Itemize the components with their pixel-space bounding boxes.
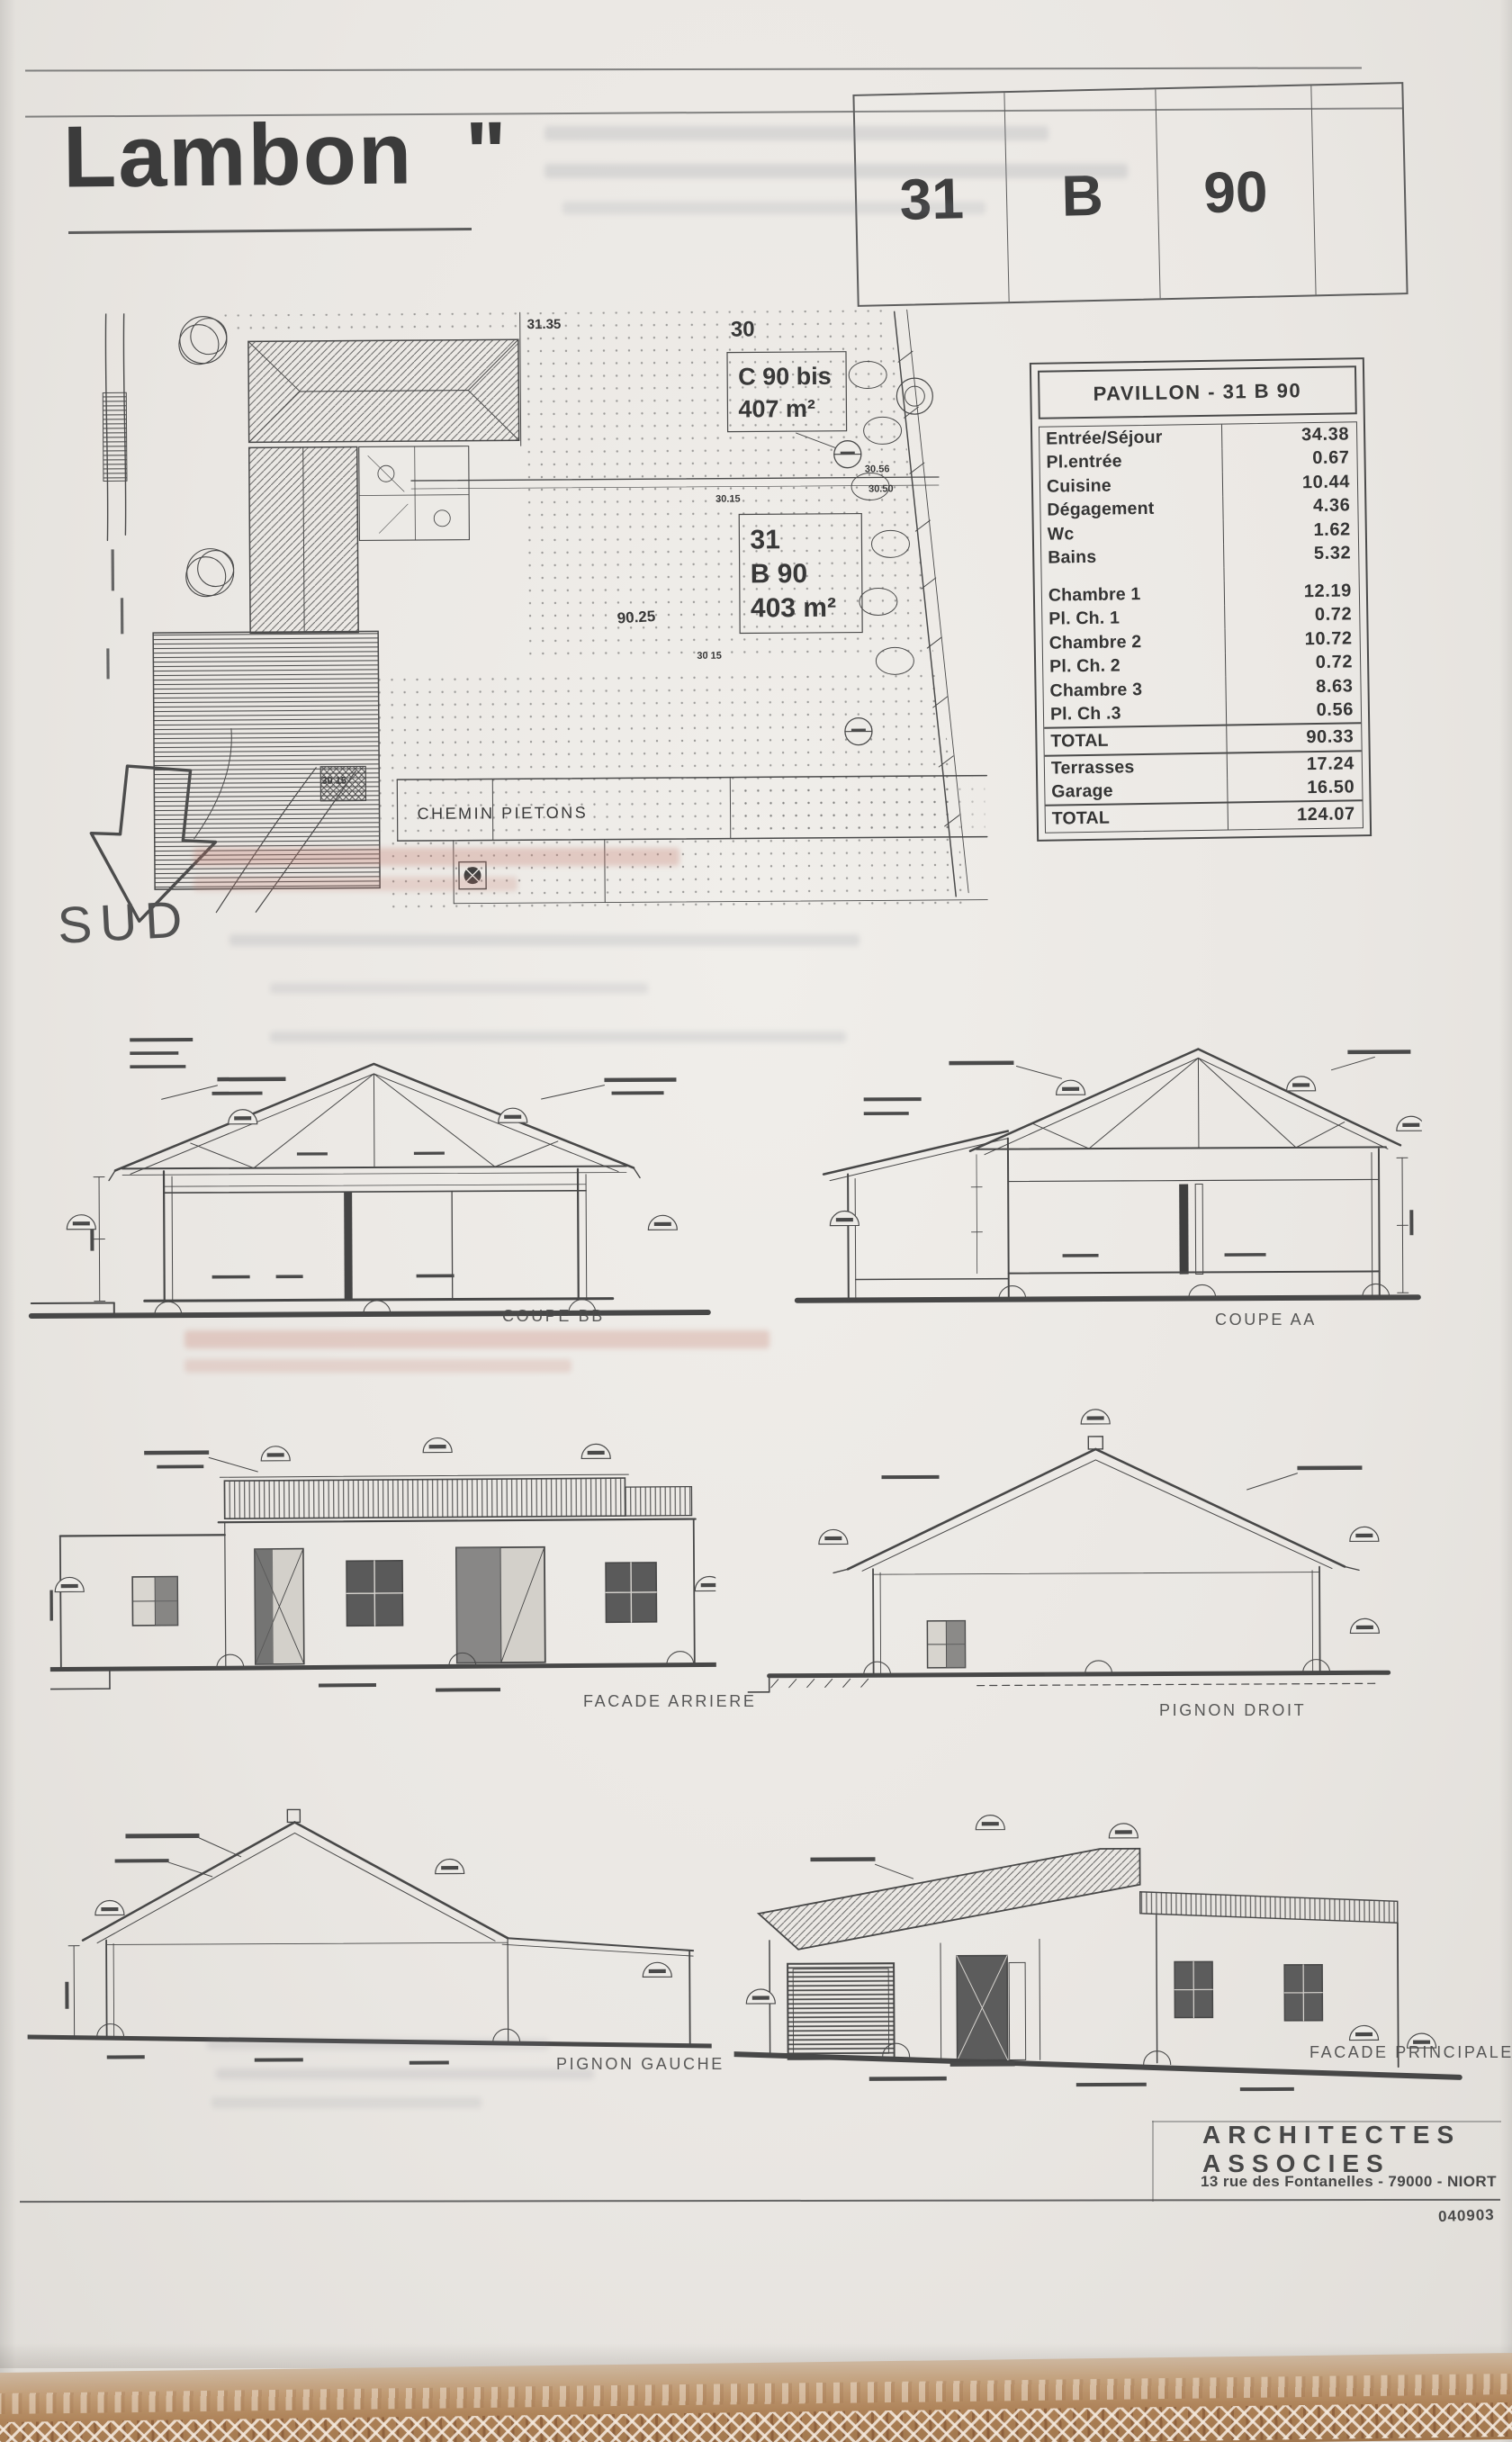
room-area: 12.19 [1224, 579, 1359, 605]
caption-coupe-aa: COUPE AA [1215, 1311, 1317, 1329]
areas-table-title: PAVILLON - 31 B 90 [1038, 365, 1357, 419]
ref-cell-31: 31 [854, 93, 1010, 305]
room-area: 10.72 [1225, 626, 1360, 653]
plan-reference-box: 31 B 90 [852, 82, 1408, 307]
stamp-code: 040903 [1438, 2206, 1495, 2226]
dim-label-top: 31.35 [527, 317, 562, 332]
room-area: 10.44 [1222, 470, 1357, 496]
dim-label-c: 30 15 [321, 776, 346, 787]
south-label: SUD [56, 889, 192, 956]
stamp-address: 13 rue des Fontanelles - 79000 - NIORT [1201, 2173, 1497, 2191]
ghost-text-line [270, 983, 648, 994]
room-label: Chambre 1 [1042, 582, 1225, 606]
footer-rule [20, 2199, 1500, 2203]
room-area: 8.63 [1226, 674, 1361, 700]
room-area: 34.38 [1221, 422, 1356, 448]
ref-cell-90: 90 [1156, 86, 1317, 298]
pignon-droit-linework [746, 1408, 1389, 1692]
ref-cell-empty [1311, 84, 1406, 294]
room-label: Wc [1041, 521, 1224, 545]
caption-facade-principale: FACADE PRINCIPALE [1309, 2043, 1512, 2062]
room-area: 16.50 [1227, 776, 1362, 802]
page-title: Lambon " [62, 102, 508, 207]
room-area: 4.36 [1222, 494, 1357, 520]
facade-arriere-drawing [49, 1394, 716, 1723]
stamp-box-left-line [1152, 2121, 1154, 2202]
room-label: Bains [1041, 545, 1224, 569]
total-label: TOTAL [1046, 806, 1228, 830]
coupe-bb-linework [30, 1035, 708, 1316]
parcel-c90-name: C 90 bis [738, 363, 832, 391]
top-rule-1 [25, 67, 1362, 71]
room-label: Entrée/Séjour [1039, 426, 1222, 449]
table-row-total-main: TOTAL90.33 [1044, 722, 1361, 757]
parcel-b90-area: 403 m² [751, 593, 836, 624]
areas-table: PAVILLON - 31 B 90 Entrée/Séjour34.38 Pl… [1030, 357, 1372, 842]
dim-label-a: 30.15 [715, 494, 741, 505]
total-value: 124.07 [1228, 801, 1363, 829]
table-row-total-all: TOTAL124.07 [1046, 799, 1363, 833]
pignon-droit-drawing [746, 1395, 1414, 1732]
room-area: 0.67 [1222, 446, 1357, 473]
coupe-aa-linework [796, 1048, 1423, 1301]
dim-label-b: 30 15 [697, 651, 722, 662]
room-area: 0.72 [1224, 603, 1359, 629]
total-value: 90.33 [1226, 724, 1361, 752]
ghost-text-line [211, 2097, 481, 2108]
room-label: Terrasses [1045, 755, 1228, 779]
ghost-text-line [229, 934, 859, 946]
dim-label-roof: 90.25 [616, 608, 656, 626]
parcel-b90-line2: B 90 [751, 559, 808, 589]
facade-arriere-linework [49, 1436, 716, 1694]
parcel-c90-area: 407 m² [738, 395, 815, 423]
room-label: Dégagement [1040, 498, 1223, 521]
paper-left-edge [0, 0, 16, 2442]
caption-coupe-bb: COUPE BB [502, 1307, 605, 1326]
room-label: Cuisine [1040, 473, 1223, 497]
spacer-label [1042, 574, 1224, 577]
room-label: Pl. Ch. 1 [1042, 607, 1225, 630]
ref-cell-b: B [1005, 89, 1161, 302]
pignon-gauche-drawing [26, 1755, 712, 2096]
parcel-b90-line1: 31 [750, 525, 780, 554]
section-coupe-aa-drawing [791, 987, 1423, 1328]
room-area: 5.32 [1223, 542, 1358, 568]
caption-pignon-gauche: PIGNON GAUCHE [556, 2055, 724, 2074]
paper-right-edge [1499, 0, 1512, 2442]
chemin-pietons-label: CHEMIN PIETONS [417, 804, 588, 823]
scanned-plan-sheet: Lambon " 31 B 90 [0, 0, 1512, 2442]
parcel-top-label: 30 [731, 317, 755, 341]
room-label: Pl. Ch. 2 [1043, 654, 1226, 678]
room-label: Pl.entrée [1039, 450, 1222, 473]
room-area: 1.62 [1223, 518, 1358, 544]
areas-table-rows: Entrée/Séjour34.38 Pl.entrée0.67 Cuisine… [1039, 421, 1363, 834]
room-area: 0.72 [1225, 651, 1360, 677]
table-row: Garage16.50 [1045, 776, 1362, 805]
stamp-name-line1: ARCHITECTES [1202, 2121, 1461, 2149]
ghost-text-line [184, 1330, 769, 1348]
dim-label-e: 30.50 [868, 483, 894, 494]
table-row: Pl. Ch .30.56 [1044, 698, 1361, 727]
ghost-text-line [184, 1359, 571, 1373]
room-label: Chambre 3 [1043, 678, 1226, 701]
room-area: 17.24 [1227, 752, 1362, 778]
caption-pignon-droit: PIGNON DROIT [1159, 1701, 1306, 1720]
total-label: TOTAL [1044, 729, 1227, 752]
room-label: Pl. Ch .3 [1044, 702, 1227, 725]
title-underline [68, 228, 472, 234]
caption-facade-arriere: FACADE ARRIERE [583, 1692, 756, 1711]
room-area: 0.56 [1226, 698, 1361, 725]
room-label: Garage [1045, 779, 1228, 803]
pignon-gauche-linework [26, 1807, 711, 2067]
dim-label-d: 30.56 [865, 464, 890, 474]
section-coupe-bb-drawing [26, 1012, 712, 1330]
room-label: Chambre 2 [1043, 630, 1226, 653]
